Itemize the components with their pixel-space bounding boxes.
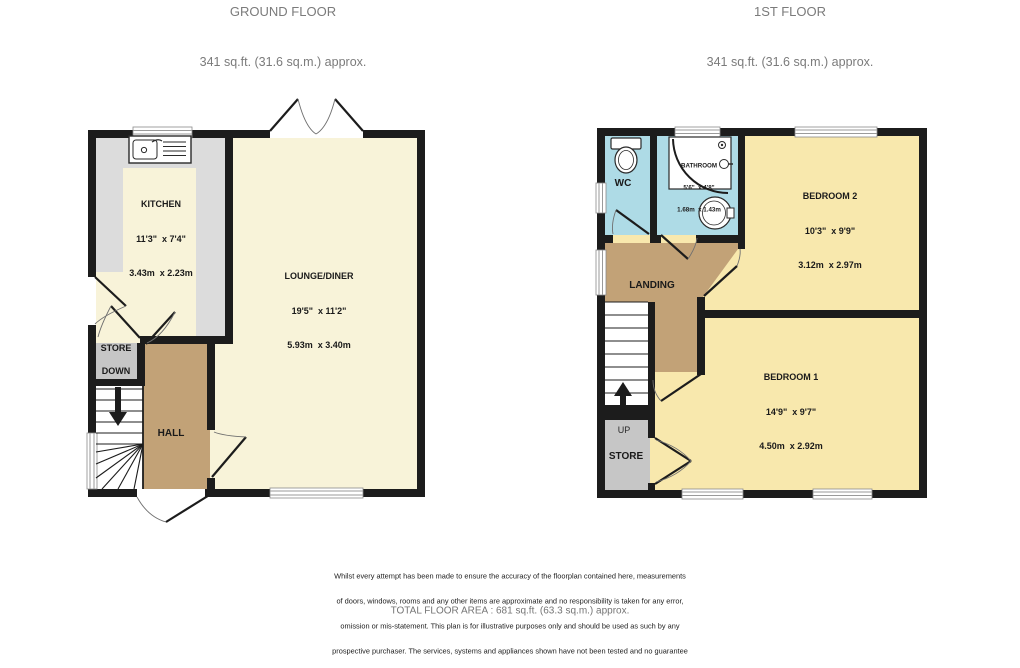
landing-label: LANDING — [629, 280, 675, 292]
floorplan-page: GROUND FLOOR 341 sq.ft. (31.6 sq.m.) app… — [0, 0, 1020, 668]
first-floor-area: 341 sq.ft. (31.6 sq.m.) approx. — [707, 56, 874, 69]
ground-floor-title-block: GROUND FLOOR 341 sq.ft. (31.6 sq.m.) app… — [200, 0, 367, 105]
bedroom1-label: BEDROOM 1 14'9" x 9'7" 4.50m x 2.92m — [759, 349, 823, 476]
lounge-diner-label: LOUNGE/DINER 19'5" x 11'2" 5.93m x 3.40m — [284, 248, 353, 375]
ground-floor-title: GROUND FLOOR — [200, 5, 367, 18]
ground-floor-area: 341 sq.ft. (31.6 sq.m.) approx. — [200, 56, 367, 69]
first-floor-title: 1ST FLOOR — [707, 5, 874, 18]
disclaimer-text: Whilst every attempt has been made to en… — [332, 555, 688, 668]
store-down-label: STORE DOWN — [101, 330, 132, 390]
ground-floor-plan — [87, 99, 425, 522]
first-floor-store-label: STORE — [609, 451, 643, 463]
hall-label: HALL — [158, 428, 185, 440]
bedroom2-label: BEDROOM 2 10'3" x 9'9" 3.12m x 2.97m — [798, 168, 862, 295]
wc-label: WC — [615, 178, 632, 190]
first-floor-title-block: 1ST FLOOR 341 sq.ft. (31.6 sq.m.) approx… — [707, 0, 874, 105]
kitchen-sink-icon — [129, 136, 191, 163]
kitchen-label: KITCHEN 11'3" x 7'4" 3.43m x 2.23m — [129, 176, 193, 303]
up-label: UP — [618, 425, 631, 435]
bathroom-label: BATHROOM 5'6" x 4'8" 1.68m x 1.43m — [677, 148, 721, 227]
